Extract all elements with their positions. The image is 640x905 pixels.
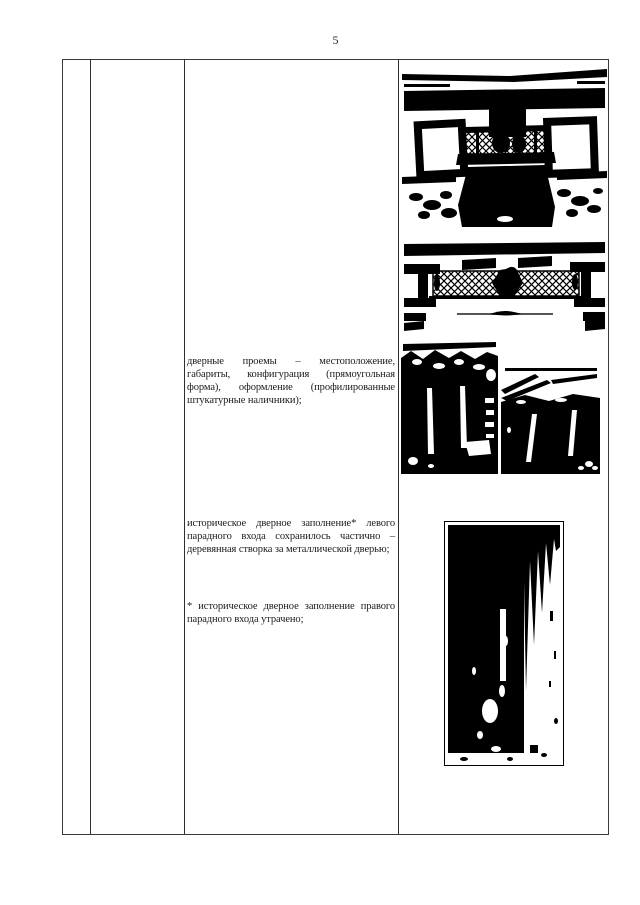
text-line: деревянная створка за металлической двер…: [187, 543, 395, 556]
text-line: парадного входа утрачено;: [187, 613, 395, 626]
text-line: * историческое дверное заполнение правог…: [187, 600, 395, 613]
table-column-divider: [90, 60, 91, 834]
paragraph-footnote: * историческое дверное заполнение правог…: [187, 600, 395, 626]
page-number: 5: [62, 33, 609, 48]
paragraph-door-openings: дверные проемы – местоположение, габарит…: [187, 355, 395, 407]
text-cell: дверные проемы – местоположение, габарит…: [185, 60, 398, 834]
text-line: штукатурные наличники);: [187, 394, 395, 407]
door-leaf-photo: [444, 521, 564, 766]
entrance-door-right-photo: [501, 368, 600, 474]
document-page: 5 дверные проемы – местоположение, габар…: [0, 0, 640, 905]
text-line: дверные проемы – местоположение,: [187, 355, 395, 368]
text-line: форма), оформление (профилированные: [187, 381, 395, 394]
text-line: парадного входа сохранилось частично –: [187, 530, 395, 543]
images-cell: [399, 60, 609, 834]
entrance-door-left-photo: [401, 342, 498, 474]
text-line: габариты, конфигурация (прямоугольная: [187, 368, 395, 381]
facade-balcony-photo: [402, 67, 607, 227]
document-table: дверные проемы – местоположение, габарит…: [62, 59, 609, 835]
text-line: историческое дверное заполнение* левого: [187, 517, 395, 530]
balcony-railing-photo: [402, 239, 607, 336]
paragraph-door-filling: историческое дверное заполнение* левого …: [187, 517, 395, 556]
